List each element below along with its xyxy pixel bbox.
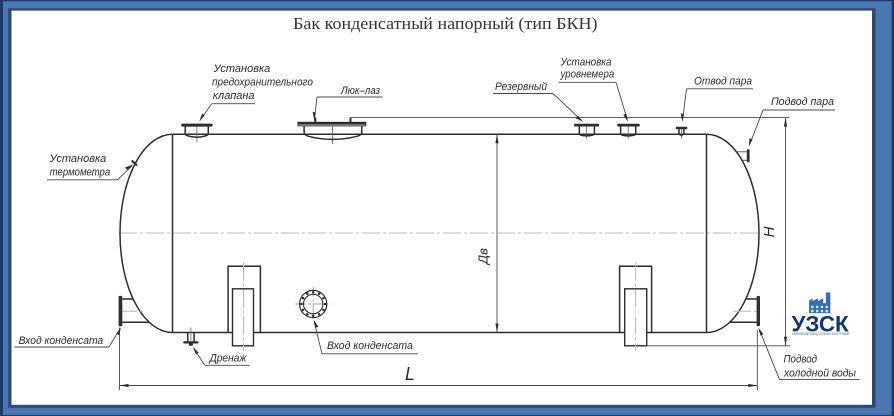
svg-text:Люк–лаз: Люк–лаз	[340, 85, 380, 97]
svg-text:Установка: Установка	[213, 63, 271, 75]
svg-text:Установка: Установка	[560, 57, 612, 69]
svg-text:H: H	[761, 226, 778, 237]
svg-text:Дв: Дв	[476, 248, 491, 266]
svg-text:Бак конденсатный напорный (тип: Бак конденсатный напорный (тип БКН)	[293, 14, 598, 33]
svg-text:уровнемера: уровнемера	[560, 69, 615, 81]
svg-text:L: L	[405, 364, 415, 384]
svg-text:термометра: термометра	[50, 166, 111, 178]
svg-text:клапана: клапана	[213, 90, 255, 102]
svg-text:холодной воды: холодной воды	[783, 368, 856, 380]
svg-text:Установка: Установка	[49, 153, 107, 165]
svg-text:Вход конденсата: Вход конденсата	[19, 335, 104, 347]
svg-text:Резервный: Резервный	[495, 81, 547, 93]
svg-text:Дренаж: Дренаж	[208, 352, 247, 364]
svg-text:УЛЬЯНОВСКИЙ ЗАВОД СТАЛЬНЫХ КОН: УЛЬЯНОВСКИЙ ЗАВОД СТАЛЬНЫХ КОНСТРУКЦИЙ	[792, 332, 850, 336]
svg-text:Подвод: Подвод	[784, 353, 818, 365]
svg-text:предохранительного: предохранительного	[212, 76, 313, 88]
svg-text:Отвод пара: Отвод пара	[694, 76, 752, 88]
svg-text:Вход конденсата: Вход конденсата	[327, 340, 413, 352]
svg-text:Подвод пара: Подвод пара	[771, 96, 834, 108]
